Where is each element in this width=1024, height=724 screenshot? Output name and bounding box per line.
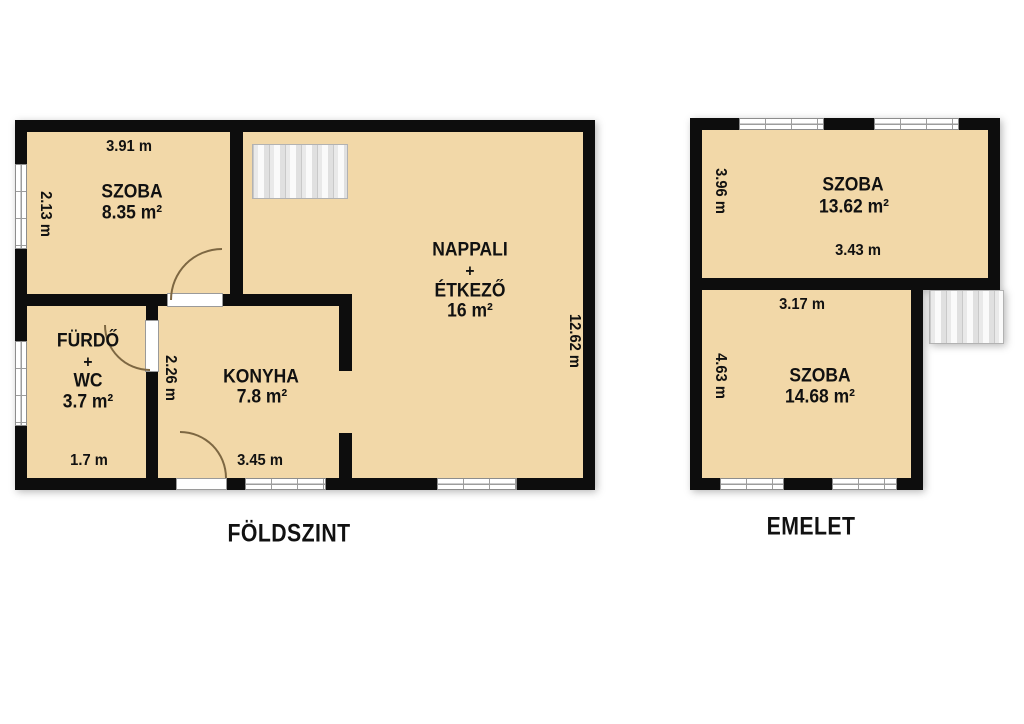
room-label-plus: + xyxy=(465,263,474,280)
room-label-szoba-top: SZOBA xyxy=(822,176,883,195)
dim-szoba-width: 3.91 m xyxy=(106,139,152,155)
door-arc xyxy=(170,248,222,300)
dim-nappali-depth: 12.62 m xyxy=(566,314,582,368)
window xyxy=(739,118,824,130)
wall xyxy=(988,118,1000,290)
dim-konyha-depth: 2.26 m xyxy=(162,355,178,401)
window xyxy=(245,478,326,490)
room-label-nappali: NAPPALI xyxy=(432,241,507,260)
room-area-konyha: 7.8 m² xyxy=(237,388,288,407)
room-label-konyha: KONYHA xyxy=(223,368,299,387)
room-area-furdo: 3.7 m² xyxy=(63,393,114,412)
room-label-wc: WC xyxy=(73,372,102,391)
wall xyxy=(911,278,923,490)
window xyxy=(832,478,897,490)
room-area-nappali: 16 m² xyxy=(447,302,493,321)
dim-furdo-width: 1.7 m xyxy=(70,453,108,469)
dim-konyha-width: 3.45 m xyxy=(237,453,283,469)
room-label-szoba-bottom: SZOBA xyxy=(789,367,850,386)
stairs-upper xyxy=(929,290,1004,344)
stairs-ground xyxy=(252,144,348,199)
wall xyxy=(339,433,352,478)
window xyxy=(15,164,27,249)
dim-szoba-depth: 2.13 m xyxy=(37,191,53,237)
window xyxy=(720,478,784,490)
dim-szoba-bottom-depth: 4.63 m xyxy=(712,353,728,399)
window xyxy=(437,478,517,490)
room-area-szoba-top: 13.62 m² xyxy=(819,198,889,217)
upper-floor-plan: SZOBA 13.62 m² 3.43 m 3.96 m 3.17 m SZOB… xyxy=(690,118,1006,490)
wall xyxy=(690,278,1000,290)
room-label-furdo: FÜRDŐ xyxy=(57,332,119,351)
upper-floor-title: EMELET xyxy=(767,513,856,542)
window xyxy=(874,118,959,130)
dim-szoba-top-width: 3.43 m xyxy=(835,243,881,259)
room-label-plus: + xyxy=(83,354,92,371)
wall xyxy=(230,132,243,306)
room-label-szoba: SZOBA xyxy=(101,183,162,202)
wall xyxy=(690,118,702,490)
room-area-szoba-bottom: 14.68 m² xyxy=(785,388,855,407)
window xyxy=(15,341,27,426)
room-label-etkezo: ÉTKEZŐ xyxy=(435,282,506,301)
door-arc xyxy=(180,431,227,478)
wall xyxy=(339,294,352,371)
ground-floor-plan: 3.91 m SZOBA 8.35 m² 2.13 m NAPPALI + ÉT… xyxy=(15,120,595,490)
dim-szoba-top-depth: 3.96 m xyxy=(712,168,728,214)
floorplan-image: 3.91 m SZOBA 8.35 m² 2.13 m NAPPALI + ÉT… xyxy=(0,0,1024,724)
dim-szoba-bottom-width: 3.17 m xyxy=(779,297,825,313)
room-area-szoba: 8.35 m² xyxy=(102,204,162,223)
ground-floor-title: FÖLDSZINT xyxy=(227,520,350,549)
entrance-door-sill xyxy=(176,478,227,490)
